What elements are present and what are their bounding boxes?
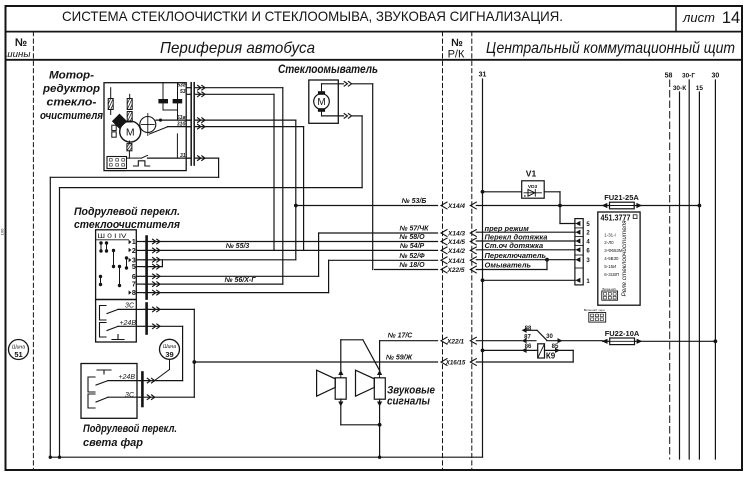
svg-text:№ 17/С: № 17/С	[387, 333, 414, 340]
svg-text:Периферия автобуса: Периферия автобуса	[160, 40, 315, 57]
svg-text:Х16/15: Х16/15	[445, 360, 466, 367]
svg-text:Х14/5: Х14/5	[447, 239, 465, 246]
svg-text:Вилка каб.: Вилка каб.	[603, 287, 617, 291]
svg-text:Х14/4: Х14/4	[447, 203, 465, 210]
svg-text:58: 58	[665, 73, 673, 80]
svg-text:№: №	[15, 37, 27, 49]
svg-text:в: в	[524, 193, 526, 198]
svg-text:4-5В30: 4-5В30	[604, 256, 619, 261]
svg-text:100: 100	[0, 228, 5, 235]
svg-text:№ 56/Х-Г: № 56/Х-Г	[224, 277, 257, 284]
svg-text:53г: 53г	[177, 83, 186, 89]
svg-text:Х14/3: Х14/3	[447, 231, 465, 238]
svg-text:VD3: VD3	[528, 184, 538, 190]
svg-text:Р/К: Р/К	[448, 49, 465, 61]
svg-text:14: 14	[722, 9, 740, 27]
svg-text:2-Л0: 2-Л0	[604, 240, 614, 245]
svg-text:света фар: света фар	[83, 437, 143, 449]
svg-text:№ 55/3: № 55/3	[225, 243, 250, 250]
svg-text:FU21-25А: FU21-25А	[604, 193, 639, 202]
svg-text:№ 52/Ф: № 52/Ф	[398, 253, 425, 260]
svg-text:6: 6	[132, 274, 136, 281]
svg-text:15: 15	[696, 85, 704, 92]
svg-text:редуктор: редуктор	[42, 83, 100, 95]
svg-text:6-31ВП: 6-31ВП	[604, 272, 619, 277]
svg-text:31: 31	[479, 72, 487, 79]
svg-text:Ст.оч дотяжка: Ст.оч дотяжка	[485, 241, 544, 250]
svg-text:Х14/2: Х14/2	[447, 248, 465, 255]
svg-text:М: М	[317, 97, 325, 108]
svg-text:К9: К9	[546, 351, 556, 360]
svg-text:№: №	[451, 37, 463, 49]
svg-text:Х22/5: Х22/5	[447, 267, 465, 274]
svg-text:31б: 31б	[177, 121, 187, 128]
svg-text:Мотор-: Мотор-	[49, 70, 94, 82]
svg-text:39: 39	[165, 350, 173, 359]
svg-text:30-К: 30-К	[673, 85, 686, 92]
svg-text:V1: V1	[526, 169, 537, 179]
svg-text:Омыватель: Омыватель	[485, 260, 532, 269]
svg-text:№ 58/О: № 58/О	[398, 234, 425, 241]
svg-text:Перекл дотяжка: Перекл дотяжка	[485, 232, 548, 241]
svg-text:+24В: +24В	[118, 374, 135, 381]
svg-text:очистителя: очистителя	[40, 110, 103, 122]
svg-text:№ 54/Р: № 54/Р	[399, 243, 425, 250]
svg-text:FU22-10А: FU22-10А	[605, 329, 640, 338]
svg-text:М: М	[126, 127, 135, 139]
svg-text:Переключатель: Переключатель	[485, 251, 547, 260]
svg-text:3С: 3С	[125, 303, 135, 310]
svg-text:сигналы: сигналы	[387, 396, 431, 408]
svg-text:53в: 53в	[177, 115, 186, 121]
svg-text:30: 30	[546, 334, 553, 340]
svg-text:Подрулевой перекл.: Подрулевой перекл.	[74, 206, 180, 218]
svg-text:СИСТЕМА СТЕКЛООЧИСТКИ И СТЕКЛО: СИСТЕМА СТЕКЛООЧИСТКИ И СТЕКЛООМЫВА, ЗВУ…	[62, 9, 563, 24]
svg-text:Вилка каб. черн.: Вилка каб. черн.	[584, 308, 606, 312]
svg-text:шины: шины	[5, 49, 31, 60]
svg-text:3-Ф653М: 3-Ф653М	[604, 248, 623, 253]
svg-text:7: 7	[132, 282, 136, 289]
svg-text:1: 1	[132, 239, 136, 246]
svg-text:лист: лист	[682, 10, 715, 25]
svg-text:8: 8	[132, 290, 136, 297]
svg-text:Подрулевой перекл.: Подрулевой перекл.	[83, 423, 177, 435]
svg-text:Реле стеклоочистителя: Реле стеклоочистителя	[622, 220, 628, 297]
svg-text:стекло-: стекло-	[47, 97, 97, 109]
svg-text:51: 51	[14, 350, 22, 359]
svg-text:Х14/1: Х14/1	[447, 258, 465, 265]
svg-text:№ 59/Ж: № 59/Ж	[385, 355, 413, 362]
svg-text:№ 53/Б: № 53/Б	[401, 198, 427, 205]
svg-text:30-Г: 30-Г	[682, 73, 695, 80]
svg-text:2: 2	[132, 248, 136, 255]
svg-text:Х22/1: Х22/1	[446, 338, 464, 345]
svg-text:Ш 0 I IV: Ш 0 I IV	[98, 233, 128, 240]
svg-text:№ 18/О: № 18/О	[398, 262, 425, 269]
svg-text:1-31-I: 1-31-I	[604, 232, 615, 237]
svg-text:№ 57/ЧК: № 57/ЧК	[399, 226, 430, 233]
svg-text:Стеклоомыватель: Стеклоомыватель	[278, 64, 378, 76]
svg-text:31: 31	[180, 153, 186, 159]
svg-text:5: 5	[132, 264, 136, 271]
svg-text:Центральный коммутационный щит: Центральный коммутационный щит	[486, 40, 735, 57]
svg-text:3С: 3С	[125, 392, 135, 399]
svg-text:5-15И: 5-15И	[604, 264, 616, 269]
svg-text:53: 53	[180, 89, 186, 95]
svg-text:30: 30	[712, 73, 720, 80]
